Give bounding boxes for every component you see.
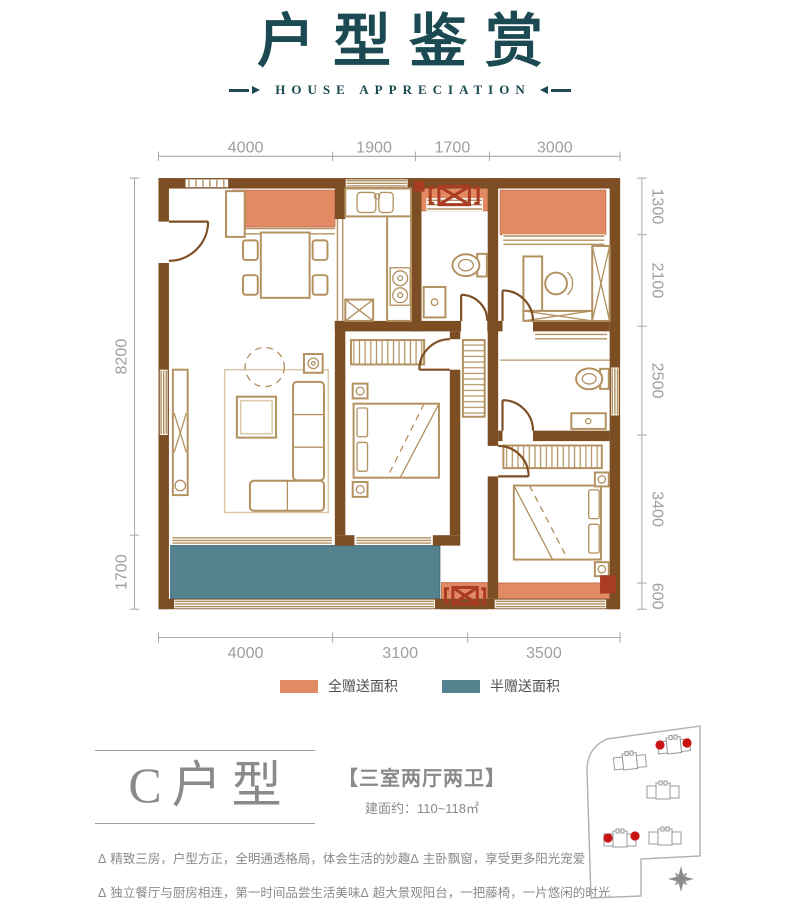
feature-item-1: Δ精致三房，户型方正，全明通透格局，体会生活的妙趣 [98,848,410,867]
bedroom2-wardrobe [351,340,424,364]
dim-right-0: 1300 [648,188,666,224]
site-map [583,712,795,910]
dim-top-0: 4000 [228,138,264,156]
legend-item-half-gift: 半赠送面积 [442,676,560,696]
round-side-table [245,347,284,386]
bullet-marker: Δ [98,886,106,900]
dim-right-2: 2500 [648,363,666,399]
bedroom2-furniture [351,340,439,497]
floor-plan: 4000 1900 1700 3000 4000 3100 3500 8200 … [106,128,690,668]
full-gift-zone-study-bay [500,190,605,234]
floor-lamp [304,354,323,373]
half-gift-zone-balcony [171,546,440,599]
furniture [173,189,610,577]
page-subtitle: HOUSE APPRECIATION [269,82,530,98]
entry-door [169,222,208,261]
coffee-table [237,397,276,438]
right-arrow-icon [540,86,548,94]
feature-item-3: Δ独立餐厅与厨房相连，第一时间品尝生活美味 [98,882,360,901]
full-gift-swatch [280,680,318,693]
half-gift-swatch [442,680,480,693]
entry-closet [226,191,245,237]
half-gift-label: 半赠送面积 [490,676,560,696]
dim-left-1: 1700 [112,554,130,590]
living-room-furniture [173,347,328,512]
dim-top-2: 1700 [435,138,471,156]
bullet-marker: Δ [360,886,368,900]
dim-bottom-1: 3100 [382,644,418,662]
feature-list: Δ精致三房，户型方正，全明通透格局，体会生活的妙趣 Δ主卧飘窗，享受更多阳光宠爱… [98,848,562,913]
page-title: 户型鉴赏 [0,10,800,74]
dim-right-4: 600 [648,583,666,610]
feature-item-4: Δ超大景观阳台，一把藤椅，一片悠闲的时光 [360,882,610,901]
dim-top-1: 1900 [356,138,392,156]
red-corner-block-bottom [600,575,616,593]
dim-right-1: 2100 [648,262,666,298]
compass-icon [668,866,694,892]
unit-layout: 【三室两厅两卫】 [332,762,512,791]
master-wardrobe [503,445,601,468]
right-dash-decoration [551,89,571,92]
page-subtitle-row: HOUSE APPRECIATION [0,82,800,98]
master-bath-fixtures [500,360,609,429]
full-gift-label: 全赠送面积 [328,676,398,696]
bullet-marker: Δ [98,852,106,866]
legend: 全赠送面积 半赠送面积 [20,676,800,696]
full-gift-zone-master-bay [495,583,610,599]
header: 户型鉴赏 HOUSE APPRECIATION [0,10,800,98]
study-furniture [523,246,609,321]
hall-cabinet [463,340,485,417]
dim-bottom-2: 3500 [526,644,562,662]
unit-meta: 【三室两厅两卫】 建面约：110~118㎡ [332,762,512,817]
red-corner-block-top [414,181,424,191]
bedroom2-bed [354,404,439,478]
unit-name-block: C户型 [95,750,315,824]
dim-bottom-0: 4000 [228,644,264,662]
dim-left-0: 8200 [112,339,130,375]
kitchen-fixtures [345,189,411,321]
full-gift-zone-dining-bay [233,190,335,227]
master-bed [514,486,601,560]
bathroom1-fixtures [424,254,487,318]
unit-area: 建面约：110~118㎡ [332,798,512,817]
dim-right-3: 3400 [648,491,666,527]
legend-item-full-gift: 全赠送面积 [280,676,398,696]
master-bedroom-furniture [503,445,608,576]
feature-item-2: Δ主卧飘窗，享受更多阳光宠爱 [410,848,585,867]
left-dash-decoration [229,89,249,92]
dim-top-3: 3000 [537,138,573,156]
bullet-marker: Δ [410,852,418,866]
sofa [293,382,324,480]
unit-name: C户型 [95,755,315,815]
site-buildings [604,734,691,847]
flyer-page: 户型鉴赏 HOUSE APPRECIATION [0,0,800,913]
bath1-door [461,295,487,321]
dining-table-set [243,233,327,298]
desk-chair [545,273,567,295]
master-bath-door [503,400,533,430]
left-arrow-icon [252,86,260,94]
